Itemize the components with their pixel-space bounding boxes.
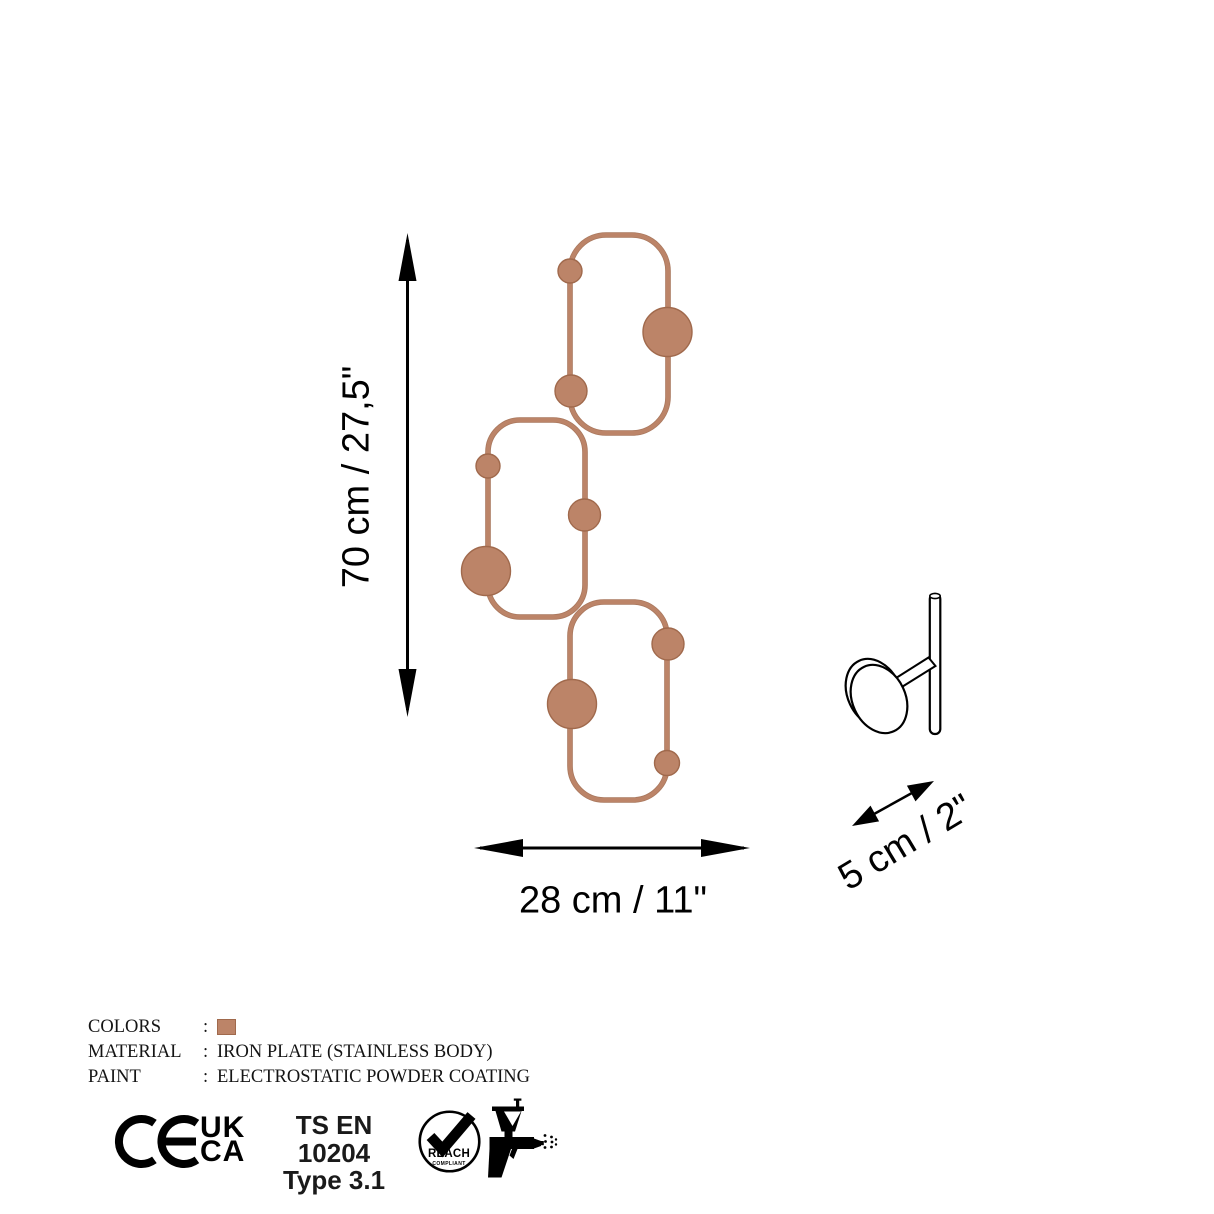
hook-knob-large	[462, 547, 511, 596]
spec-colon: :	[203, 1040, 217, 1065]
standard-certification-text: TS EN 10204 Type 3.1	[257, 1112, 411, 1195]
product-dimension-diagram-page: 70 cm / 27,5" 28 cm / 11" 5 cm / 2" COLO…	[0, 0, 1214, 1214]
arrowhead-up	[399, 233, 417, 281]
spec-value: ELECTROSTATIC POWDER COATING	[217, 1065, 530, 1090]
height-dimension-arrow	[399, 233, 417, 717]
ukca-mark: UK CA	[200, 1116, 245, 1164]
reach-compliant-label: COMPLIANT	[432, 1161, 465, 1167]
arrowhead-down-left	[852, 806, 879, 826]
hook-knob-small	[476, 454, 500, 478]
arrowhead-up-right	[907, 781, 934, 801]
spec-label: COLORS	[88, 1015, 203, 1040]
hook-knob-small	[558, 259, 582, 283]
arrowhead-down	[399, 669, 417, 717]
spray-gun-icon	[488, 1099, 557, 1178]
hook-knob-large	[643, 308, 692, 357]
hook-knob-medium	[555, 375, 587, 407]
spec-table: COLORS : MATERIAL : IRON PLATE (STAINLES…	[88, 1015, 530, 1090]
reach-label: REACH	[428, 1148, 470, 1160]
arrowhead-left	[474, 839, 523, 857]
color-swatch	[217, 1019, 236, 1035]
spec-label: MATERIAL	[88, 1040, 203, 1065]
hook-knob-small	[655, 751, 680, 776]
height-dimension-label: 70 cm / 27,5"	[336, 366, 379, 589]
arrowhead-right	[701, 839, 750, 857]
spec-label: PAINT	[88, 1065, 203, 1090]
spec-value: IRON PLATE (STAINLESS BODY)	[217, 1040, 493, 1065]
spec-row-material: MATERIAL : IRON PLATE (STAINLESS BODY)	[88, 1040, 530, 1065]
ce-mark-icon	[119, 1119, 197, 1164]
spec-colon: :	[203, 1015, 217, 1040]
width-dimension-label: 28 cm / 11"	[519, 880, 707, 923]
spec-colon: :	[203, 1065, 217, 1090]
hook-knob-medium	[652, 628, 684, 660]
spec-row-colors: COLORS :	[88, 1015, 530, 1040]
hook-side-view	[835, 593, 940, 742]
coat-rack-front-view	[462, 235, 693, 800]
ukca-line2: CA	[200, 1140, 245, 1164]
spec-row-paint: PAINT : ELECTROSTATIC POWDER COATING	[88, 1065, 530, 1090]
standard-line1: TS EN 10204	[257, 1112, 411, 1167]
hook-knob-medium	[569, 499, 601, 531]
width-dimension-arrow	[474, 839, 750, 857]
hook-rod-cap	[930, 593, 940, 598]
hook-knob-large	[548, 680, 597, 729]
standard-line2: Type 3.1	[257, 1167, 411, 1195]
